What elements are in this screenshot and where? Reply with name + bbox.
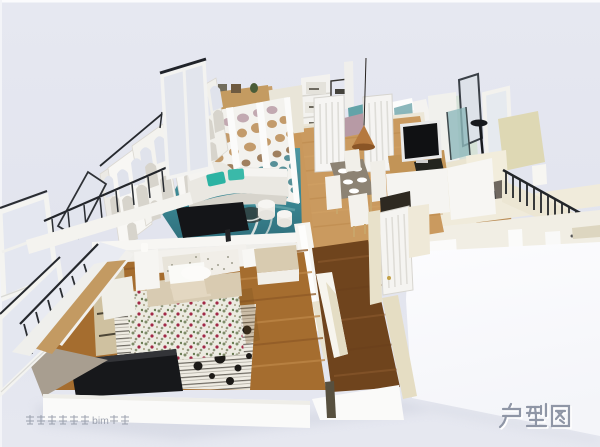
svg-text:bim: bim <box>92 415 109 427</box>
